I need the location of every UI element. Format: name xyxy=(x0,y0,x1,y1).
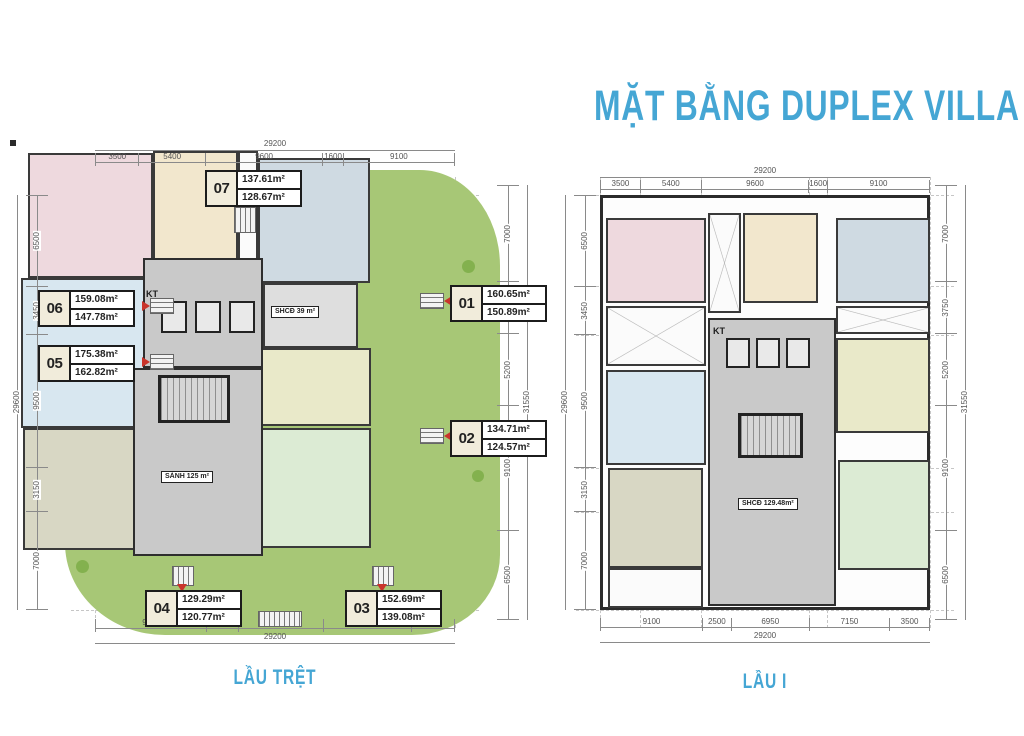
dim-value: 29600 xyxy=(13,390,21,414)
room-unit-02 xyxy=(258,348,371,426)
room-unit-07 xyxy=(743,213,818,303)
dim-overall-bottom: 29200 xyxy=(95,633,455,645)
unit-label-01: 01 160.65m²150.89m² xyxy=(450,285,547,322)
unit-area-lower: 162.82m² xyxy=(71,365,133,381)
dim-overall-top: 29200 xyxy=(95,140,455,152)
unit-area-lower: 147.78m² xyxy=(71,310,133,326)
dim-value: 29200 xyxy=(264,140,286,148)
unit-number: 03 xyxy=(347,592,378,625)
void-area xyxy=(836,306,930,334)
unit-area-upper: 129.29m² xyxy=(178,592,240,610)
dimension-segment: 5200 xyxy=(935,333,957,405)
dimension-segment: 3150 xyxy=(26,467,48,512)
plan-name-ground-floor: LẦU TRỆT xyxy=(95,666,455,690)
elevator xyxy=(726,338,750,368)
dim-overall-right: 31550 xyxy=(520,185,534,620)
dim-col-left: 65003450950031507000 xyxy=(26,195,48,610)
dim-row-top: 35005400960016009100 xyxy=(600,180,930,193)
dimension-segment: 3450 xyxy=(574,286,596,335)
grid-line xyxy=(930,177,931,628)
dimension-segment: 9500 xyxy=(574,334,596,466)
unit-label-07: 07 137.61m²128.67m² xyxy=(205,170,302,207)
unit-area-lower: 150.89m² xyxy=(483,305,545,321)
building-footprint: KT SHCĐ 129.48m² xyxy=(600,195,930,610)
dimension-segment: 2500 xyxy=(702,618,731,631)
dimension-segment: 3500 xyxy=(889,618,930,631)
entry-stair xyxy=(150,298,174,314)
unit-area-lower: 124.57m² xyxy=(483,440,545,456)
dimension-segment: 7000 xyxy=(26,511,48,610)
unit-label-02: 02 134.71m²124.57m² xyxy=(450,420,547,457)
unit-area-upper: 175.38m² xyxy=(71,347,133,365)
elevator xyxy=(195,301,221,333)
dimension-segment: 3150 xyxy=(574,467,596,512)
unit-label-03: 03 152.69m²139.08m² xyxy=(345,590,442,627)
dimension-segment: 3500 xyxy=(600,180,640,193)
unit-area-upper: 137.61m² xyxy=(238,172,300,190)
dimension-segment: 7000 xyxy=(574,511,596,610)
unit-area-upper: 134.71m² xyxy=(483,422,545,440)
room-unit-06 xyxy=(606,218,706,303)
page-title: MẶT BẰNG DUPLEX VILLA xyxy=(594,82,1024,131)
entry-stair xyxy=(172,566,194,586)
dim-col-left: 65003450950031507000 xyxy=(574,195,596,610)
unit-number: 07 xyxy=(207,172,238,205)
dim-row-bottom: 91002500695071503500 xyxy=(600,618,930,631)
dimension-segment: 5400 xyxy=(640,180,701,193)
tree-icon xyxy=(462,260,475,273)
plan-name-text: LẦU I xyxy=(743,670,787,694)
entry-stair xyxy=(372,566,394,586)
dim-overall-bottom: 29200 xyxy=(600,632,930,644)
unit-number: 04 xyxy=(147,592,178,625)
dim-value: 29200 xyxy=(754,632,776,640)
room-unit-04 xyxy=(608,468,703,568)
sanh-label: SẢNH 125 m² xyxy=(161,471,213,483)
dim-row-top: 35005400960016009100 xyxy=(95,153,455,166)
tree-icon xyxy=(76,560,89,573)
unit-area-lower: 139.08m² xyxy=(378,610,440,626)
dim-value: 29600 xyxy=(561,390,569,414)
elevator xyxy=(229,301,255,333)
dim-value: 31550 xyxy=(961,390,969,414)
shcd-label: SHCĐ 129.48m² xyxy=(738,498,798,510)
dim-overall-right: 31550 xyxy=(958,185,972,620)
entry-arrow-icon xyxy=(142,301,150,311)
dimension-segment: 9100 xyxy=(343,153,455,166)
unit-label-04: 04 129.29m²120.77m² xyxy=(145,590,242,627)
dimension-segment: 1600 xyxy=(322,153,342,166)
plan-first-floor: 29200 35005400960016009100 9100250069507… xyxy=(550,165,1010,700)
entry-stair xyxy=(150,354,174,370)
lobby-entry-steps xyxy=(258,611,302,627)
unit-number: 02 xyxy=(452,422,483,455)
room-unit-01 xyxy=(836,218,930,303)
dimension-segment: 6500 xyxy=(935,530,957,620)
dimension-segment: 9600 xyxy=(205,153,322,166)
dimension-segment: 6500 xyxy=(26,195,48,286)
page-title-text: MẶT BẰNG DUPLEX VILLA xyxy=(594,82,1020,131)
floor-plan-page: MẶT BẰNG DUPLEX VILLA 29200 350054009600… xyxy=(0,0,1024,736)
tree-icon xyxy=(472,470,484,482)
main-stair xyxy=(158,375,230,423)
entry-stair xyxy=(234,207,256,233)
dimension-segment: 5400 xyxy=(138,153,204,166)
dimension-segment: 7150 xyxy=(809,618,889,631)
unit-number: 05 xyxy=(40,347,71,380)
dimension-segment: 7000 xyxy=(497,185,519,281)
unit-area-lower: 120.77m² xyxy=(178,610,240,626)
void-stairwell xyxy=(708,213,741,313)
room-unit-03 xyxy=(838,460,930,570)
dimension-segment: 1600 xyxy=(808,180,827,193)
room-unit-05 xyxy=(606,370,706,465)
dim-value: 29200 xyxy=(754,167,776,175)
dimension-segment: 7000 xyxy=(935,185,957,281)
room-open-below xyxy=(608,568,703,608)
unit-label-06: 06 159.08m²147.78m² xyxy=(38,290,135,327)
unit-label-05: 05 175.38m²162.82m² xyxy=(38,345,135,382)
entry-stair xyxy=(420,428,444,444)
plan-name-first-floor: LẦU I xyxy=(600,670,930,694)
room-unit-03 xyxy=(258,428,371,548)
unit-number: 06 xyxy=(40,292,71,325)
void-area xyxy=(606,306,706,366)
shcd-label: SHCĐ 39 m² xyxy=(271,306,319,318)
elevator xyxy=(786,338,810,368)
room-unit-02 xyxy=(836,338,930,433)
room-unit-07 xyxy=(153,151,238,263)
dimension-segment: 9100 xyxy=(827,180,930,193)
entry-arrow-icon xyxy=(142,357,150,367)
grid-line xyxy=(576,610,954,611)
plan-name-text: LẦU TRỆT xyxy=(234,666,317,690)
dimension-segment: 3750 xyxy=(935,281,957,333)
dimension-segment: 6500 xyxy=(497,530,519,620)
dimension-segment: 6950 xyxy=(731,618,809,631)
unit-area-lower: 128.67m² xyxy=(238,190,300,206)
dim-col-right: 70003750520091006500 xyxy=(935,185,957,620)
dimension-segment: 9100 xyxy=(600,618,702,631)
unit-area-upper: 152.69m² xyxy=(378,592,440,610)
dimension-segment: 6500 xyxy=(574,195,596,286)
dim-col-right: 70003750520091006500 xyxy=(497,185,519,620)
unit-area-upper: 159.08m² xyxy=(71,292,133,310)
dimension-segment: 5200 xyxy=(497,333,519,405)
dimension-segment: 9100 xyxy=(935,405,957,530)
dim-overall-top: 29200 xyxy=(600,167,930,179)
building-footprint: KT SHCĐ 39 m² SẢNH 125 m² xyxy=(10,140,16,146)
dim-overall-left: 29600 xyxy=(558,195,572,610)
main-stair xyxy=(738,413,803,458)
plan-ground-floor: 29200 35005400960016009100 9100250069507… xyxy=(10,140,540,700)
unit-number: 01 xyxy=(452,287,483,320)
entry-stair xyxy=(420,293,444,309)
unit-area-upper: 160.65m² xyxy=(483,287,545,305)
dimension-segment: 3500 xyxy=(95,153,138,166)
dim-overall-left: 29600 xyxy=(10,195,24,610)
dimension-segment: 9600 xyxy=(701,180,809,193)
dim-value: 31550 xyxy=(523,390,531,414)
kt-label: KT xyxy=(713,326,725,336)
dim-value: 29200 xyxy=(264,633,286,641)
elevator xyxy=(756,338,780,368)
